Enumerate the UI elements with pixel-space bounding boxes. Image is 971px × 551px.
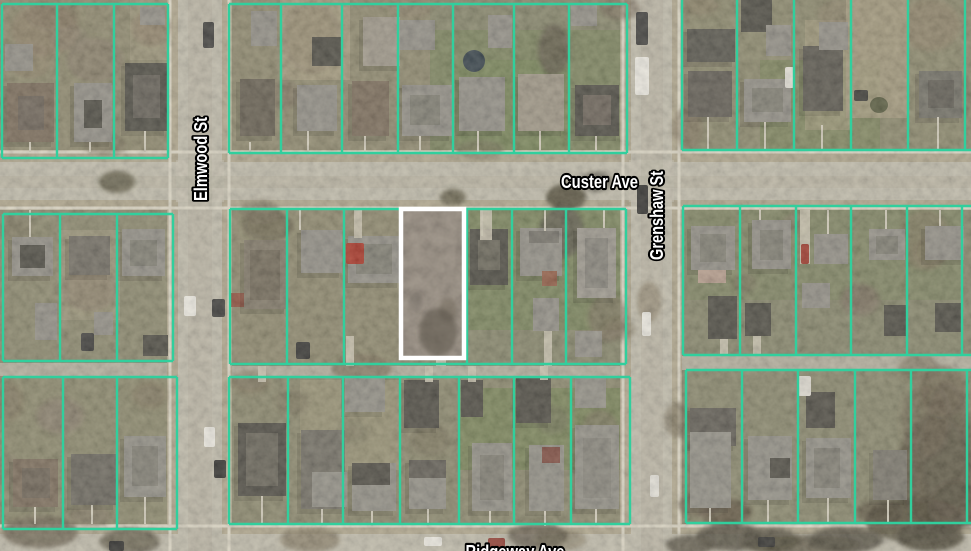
svg-text:Custer Ave: Custer Ave	[561, 172, 638, 192]
svg-text:Grenshaw St: Grenshaw St	[647, 171, 667, 260]
svg-text:Elmwood St: Elmwood St	[191, 117, 211, 201]
svg-text:Ridgeway Ave: Ridgeway Ave	[466, 542, 565, 551]
